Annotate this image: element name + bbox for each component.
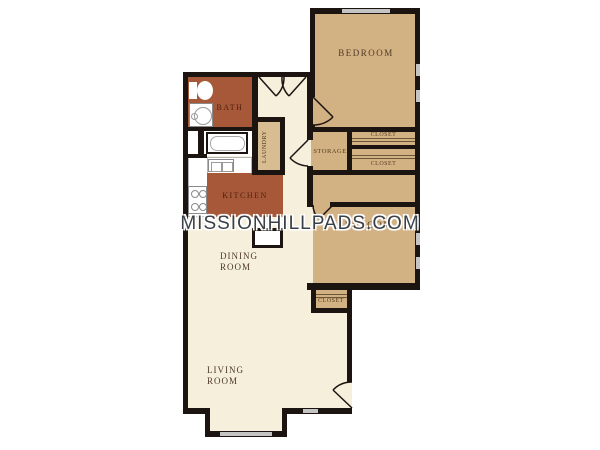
window — [416, 257, 420, 269]
window — [220, 432, 272, 436]
door-arc — [333, 382, 352, 408]
storage-label: STORAGE — [311, 148, 349, 155]
window — [303, 409, 318, 413]
window — [416, 90, 420, 102]
dining-room-label: DINING ROOM — [220, 251, 270, 273]
living-room-label-line2: ROOM — [207, 376, 238, 386]
living-room-label-line1: LIVING — [207, 365, 244, 375]
door-arc — [282, 77, 306, 96]
bedroom1-label: BEDROOM — [316, 48, 416, 59]
closet-bedroom2-label: CLOSET — [314, 298, 348, 304]
dining-room-label-line2: ROOM — [220, 262, 251, 272]
window — [342, 9, 390, 13]
living-room-label: LIVING ROOM — [207, 365, 257, 387]
closet-upper-label: CLOSET — [352, 132, 415, 138]
dining-room-label-line1: DINING — [220, 251, 258, 261]
door-arc — [290, 140, 308, 166]
bath-label: BATH — [205, 103, 255, 112]
closet-lower-label: CLOSET — [352, 161, 415, 167]
kitchen-label: KITCHEN — [213, 191, 277, 200]
laundry-label: LAUNDRY — [262, 126, 268, 168]
window — [416, 64, 420, 76]
watermark-text: MISSIONHILLPADS.COM — [0, 213, 600, 235]
door-arc — [259, 77, 284, 96]
door-arc — [313, 97, 333, 125]
floorplan-image: BEDROOM BEDROOM BATH KITCHEN LAUNDRY STO… — [0, 0, 600, 450]
